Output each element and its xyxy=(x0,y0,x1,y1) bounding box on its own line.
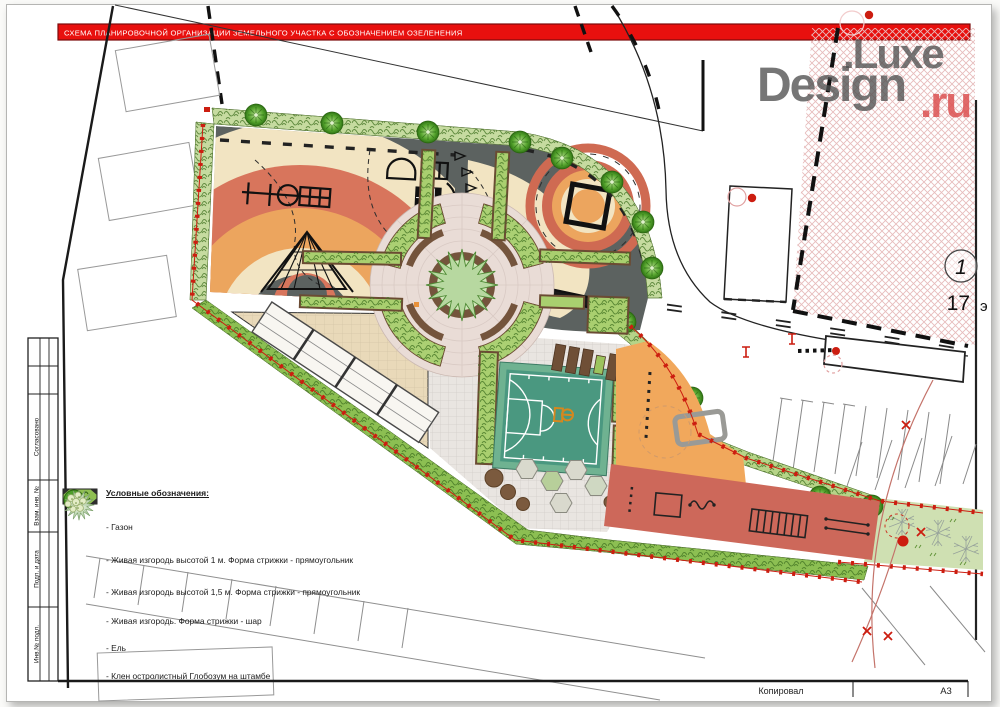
building-floors-suffix: э xyxy=(980,298,988,315)
stamp-label-podp-data: Подп. и дата xyxy=(34,550,41,588)
banner-title: СХЕМА ПЛАНИРОВОЧНОЙ ОРГАНИЗАЦИИ ЗЕМЕЛЬНО… xyxy=(64,29,463,38)
workout-zone-orange xyxy=(616,341,746,485)
legend-item-label: - Газон xyxy=(106,522,133,532)
footer-format: А3 xyxy=(940,686,952,697)
legend-item-label: - Живая изгородь высотой 1,5 м. Форма ст… xyxy=(106,587,360,597)
legend-item-label: - Ель xyxy=(106,643,126,653)
legend-item-spruce: - Ель xyxy=(62,634,412,662)
stamp-label-inv-podl: Инв.№ подл. xyxy=(34,625,41,663)
legend-item-hedge-1-5m: - Живая изгородь высотой 1,5 м. Форма ст… xyxy=(62,576,412,607)
stamp-label-vzam-inv: Взам. инв. № xyxy=(34,486,41,526)
legend: Условные обозначения: - Газон - Живая из… xyxy=(62,488,412,690)
stamp-label-soglasovano: Согласовано xyxy=(34,417,41,456)
sheet-stage: СХЕМА ПЛАНИРОВОЧНОЙ ОРГАНИЗАЦИИ ЗЕМЕЛЬНО… xyxy=(0,0,1000,707)
legend-item-hedge-1m: - Живая изгородь высотой 1 м. Форма стри… xyxy=(62,543,412,576)
legend-heading: Условные обозначения: xyxy=(106,488,412,498)
legend-item-lawn: - Газон xyxy=(62,510,412,543)
plaza-center-tree xyxy=(426,249,498,321)
building-callout-number: 1 xyxy=(955,256,967,279)
legend-item-hedge-ball: - Живая изгородь. Форма стрижки - шар xyxy=(62,607,412,634)
building-floors: 17 xyxy=(947,292,970,315)
footer-copied-by: Копировал xyxy=(758,686,803,696)
legend-item-maple: - Клен остролистный Глобозум на штамбе xyxy=(62,662,412,690)
legend-item-label: - Живая изгородь. Форма стрижки - шар xyxy=(106,616,262,626)
legend-item-label: - Живая изгородь высотой 1 м. Форма стри… xyxy=(106,555,353,565)
legend-item-label: - Клен остролистный Глобозум на штамбе xyxy=(106,671,270,681)
building-17-floors: 1 17 э xyxy=(793,28,988,346)
basketball-court xyxy=(493,362,614,476)
title-block: Согласовано Взам. инв. № Подп. и дата Ин… xyxy=(28,338,58,681)
